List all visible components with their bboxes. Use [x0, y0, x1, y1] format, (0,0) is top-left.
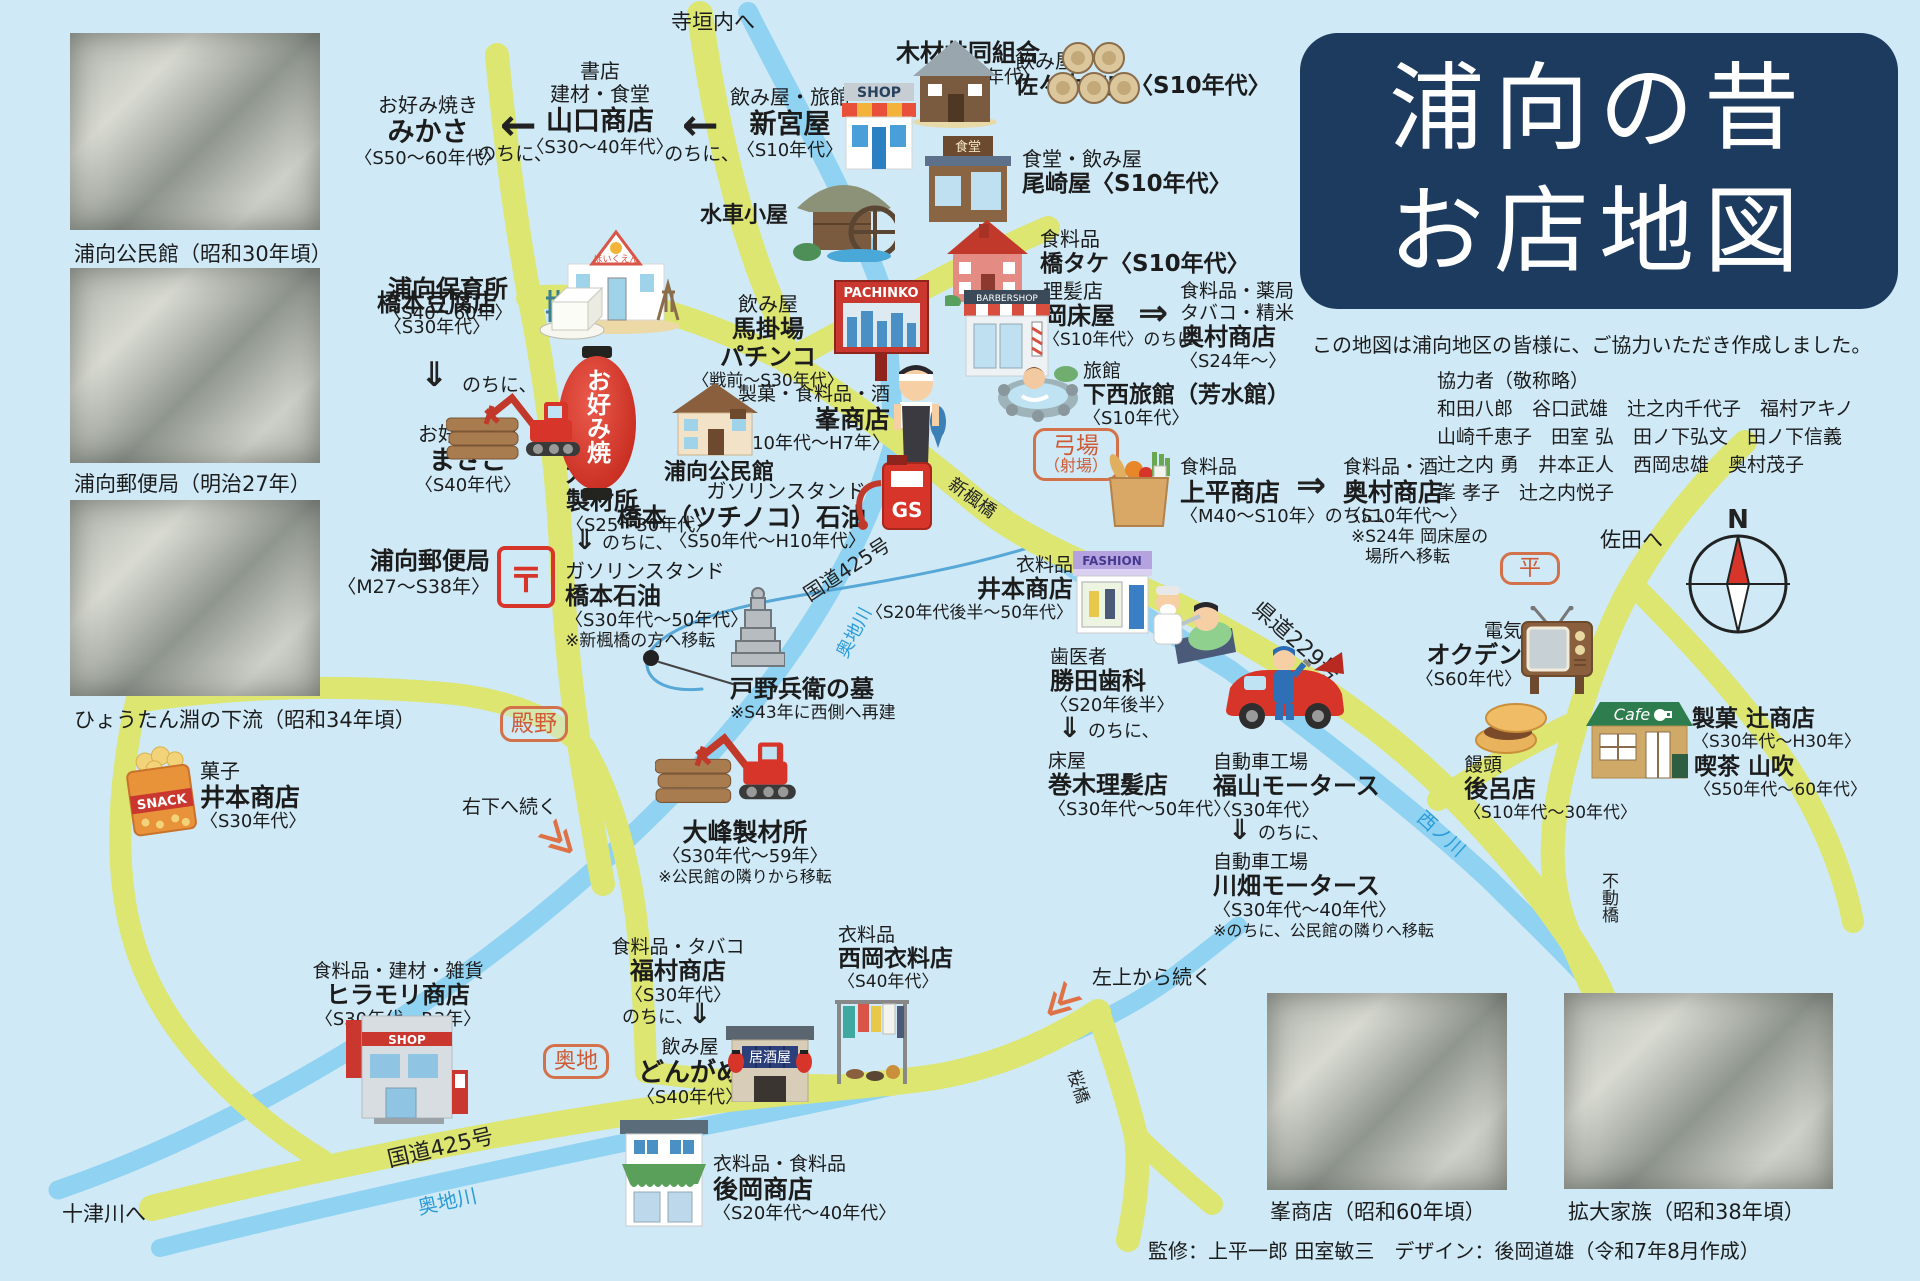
svg-text:GS: GS	[892, 498, 923, 522]
label-tsuji: 製菓 辻商店〈S30年代〜H30年〉	[1692, 706, 1861, 752]
label-makigi: 床屋巻木理髪店〈S30年代〜50年代〉	[1048, 750, 1231, 821]
credit-line: 監修：上平一郎 田室敏三 デザイン：後岡道雄（令和7年8月作成）	[1148, 1240, 1760, 1263]
svg-text:N: N	[1727, 508, 1749, 535]
label-tsuchinoko: ガソリンスタンド橋本（ツチノコ）石油〈S50年代〜H10年代〉	[617, 480, 866, 553]
photo-kouminkan-caption: 浦向公民館（昭和30年頃）	[74, 238, 332, 268]
nochini-2: のちに、	[664, 143, 739, 165]
photo-kakudai-kazoku-caption: 拡大家族（昭和38年頃）	[1568, 1196, 1805, 1226]
photo-kakudai-kazoku	[1564, 993, 1833, 1189]
photo-mineshouten	[1267, 993, 1507, 1190]
shokudo-diner-icon: 食堂	[923, 136, 1013, 226]
label-okuden: 電気オクデン〈S60年代〉	[1416, 620, 1522, 691]
grave-old-site-dot	[643, 650, 659, 666]
sawmill-excavator-icon-2	[655, 715, 800, 810]
label-sada: 佐田へ	[1600, 528, 1663, 552]
photo-mineshouten-caption: 峯商店（昭和60年頃）	[1270, 1196, 1486, 1226]
tv-icon	[1520, 606, 1594, 696]
label-yamaguchi: 書店建材・食堂 山口商店〈S30〜40年代〉	[526, 60, 673, 159]
svg-text:Cafe: Cafe	[1614, 705, 1651, 724]
sawmill-excavator-icon	[446, 380, 584, 462]
label-oomine2: 大峰製材所〈S30年代〜59年〉※公民館の隣りから移転	[658, 818, 831, 886]
tonono-box: 殿野	[500, 706, 568, 742]
nochini-6: のちに、	[1258, 824, 1329, 845]
label-hashimoto-sekiyu: ガソリンスタンド橋本石油 〈S30年代〜50年代〉※新楓橋の方へ移転	[565, 560, 748, 652]
label-hidariue: 左上から続く	[1092, 966, 1212, 989]
arrow-down-4: ⇓	[1228, 816, 1251, 844]
okuchi-box: 奥地	[543, 1044, 609, 1079]
arrow-down-2: ⇓	[573, 526, 596, 554]
label-atooka: 衣料品・食料品後岡商店〈S20年代〜40年代〉	[713, 1153, 896, 1225]
photo-yuubinkyoku-caption: 浦向郵便局（明治27年）	[74, 468, 311, 498]
old-shops-map: 浦向の昔 お店地図 この地図は浦向地区の皆様に、ご協力いただき作成しました。 協…	[0, 0, 1920, 1281]
svg-text:居酒屋: 居酒屋	[749, 1050, 791, 1066]
grocery-bag-icon	[1104, 448, 1174, 528]
gas-pump-icon: GS	[851, 451, 937, 535]
svg-text:ほいくえん: ほいくえん	[593, 254, 638, 265]
fashion-shop-icon: FASHION	[1073, 551, 1152, 635]
atooka-shop-icon	[620, 1120, 708, 1228]
label-imoto-fashion: 衣料品井本商店〈S20年代後半〜50年代〉	[866, 554, 1073, 624]
compass-icon: N	[1678, 508, 1798, 640]
grave-icon	[731, 586, 785, 676]
lantern-text: お好み焼	[580, 368, 615, 464]
arrow-left-2: ←	[682, 104, 719, 148]
photo-hyoutan	[70, 500, 320, 696]
onsen-icon	[996, 354, 1080, 422]
contributors: 協力者（敬称略） 和田八郎 谷口武雄 辻之内千代子 福村アキノ 山崎千恵子 田室…	[1437, 370, 1854, 504]
nochini-7: のちに、	[622, 1008, 693, 1029]
hira-box: 平	[1500, 552, 1560, 585]
label-ozakiya: 食堂・飲み屋尾崎屋〈S10年代〉	[1022, 148, 1232, 198]
svg-text:SHOP: SHOP	[388, 1033, 426, 1047]
label-yamabuki: 喫茶 山吹〈S50年代〜60年代〉	[1694, 754, 1867, 800]
photo-yuubinkyoku	[70, 268, 320, 463]
label-yuubinkyoku: 浦向郵便局〈M27〜S38年〉	[337, 548, 490, 598]
arrow-right-2: ⇒	[1296, 468, 1326, 504]
arrow-down-5: ⇓	[688, 1000, 711, 1028]
label-shimonishi: 旅館下西旅館（芳水館）〈S10年代〉	[1083, 360, 1290, 430]
label-okumura1: 食料品・薬局タバコ・精米 奥村商店〈S24年〜〉	[1180, 280, 1294, 373]
svg-text:FASHION: FASHION	[1082, 554, 1142, 568]
cafe-icon: Cafe	[1586, 696, 1693, 784]
photo-kouminkan	[70, 33, 320, 230]
label-suisha: 水車小屋	[700, 203, 788, 229]
map-title-line2: お店地図	[1389, 171, 1809, 295]
svg-text:SHOP: SHOP	[857, 85, 901, 101]
label-imoto-kashi: 菓子井本商店〈S30年代〉	[200, 760, 306, 833]
watermill-icon	[793, 160, 895, 262]
map-title: 浦向の昔 お店地図	[1300, 33, 1898, 309]
label-shinguya: 飲み屋・旅館新宮屋〈S10年代〉	[730, 86, 850, 161]
post-office-mark-icon: 〒	[497, 546, 555, 608]
map-title-line1: 浦向の昔	[1389, 48, 1809, 172]
arrow-right-1: ⇒	[1138, 296, 1168, 332]
label-fukuyama: 自動車工場福山モータース〈S30年代〉	[1213, 751, 1380, 822]
tofu-icon	[536, 278, 608, 342]
kouminkan-house-icon	[670, 381, 760, 459]
label-pachinko: 飲み屋馬掛場 パチンコ〈戦前〜S30年代〉	[692, 293, 843, 392]
nochini-5: のちに、	[1088, 722, 1159, 743]
label-kawabata: 自動車工場川畑モータース 〈S30年代〜40年代〉※のちに、公民館の隣りへ移転	[1213, 851, 1434, 940]
label-teragaito: 寺垣内へ	[671, 10, 755, 34]
label-nishioka: 衣料品西岡衣料店〈S40年代〉	[838, 924, 953, 992]
photo-hyoutan-caption: ひょうたん淵の下流（昭和34年頃）	[74, 704, 416, 734]
arrow-down-3: ⇓	[1058, 714, 1081, 742]
hiramori-shop-icon: SHOP	[346, 1008, 470, 1130]
label-tofu: 橋本豆腐店〈S30年代〉	[377, 290, 497, 339]
intro-text: この地図は浦向地区の皆様に、ご協力いただき作成しました。	[1312, 334, 1871, 357]
shop-storefront-icon: SHOP	[838, 83, 920, 171]
label-migishita: 右下へ続く	[462, 796, 557, 818]
snack-bag-icon: SNACK	[120, 746, 204, 840]
label-totsukawa: 十津川へ	[62, 1202, 146, 1226]
izakaya-icon: 居酒屋	[726, 1026, 814, 1102]
label-okumura2: 食料品・酒奥村商店 〈S10年代〜〉※S24年 岡床屋の 場所へ移転	[1343, 456, 1488, 567]
sasaki-house-icon	[910, 36, 1000, 128]
svg-text:BARBERSHOP: BARBERSHOP	[976, 294, 1038, 304]
arrow-down-1: ⇓	[420, 358, 449, 392]
bridge-label-fudou: 不動橋	[1596, 872, 1621, 923]
svg-text:食堂: 食堂	[955, 139, 981, 155]
label-hashitake: 食料品橋タケ〈S10年代〉	[1040, 228, 1250, 278]
clothes-rack-icon	[831, 986, 913, 1090]
dorayaki-icon	[1474, 692, 1548, 758]
logs-icon	[1045, 28, 1140, 113]
mechanic-car-icon	[1220, 636, 1350, 740]
label-fukumura: 食料品・タバコ福村商店〈S30年代〉	[611, 936, 744, 1007]
svg-text:PACHINKO: PACHINKO	[843, 286, 918, 301]
grave-pointer-line	[659, 662, 733, 684]
